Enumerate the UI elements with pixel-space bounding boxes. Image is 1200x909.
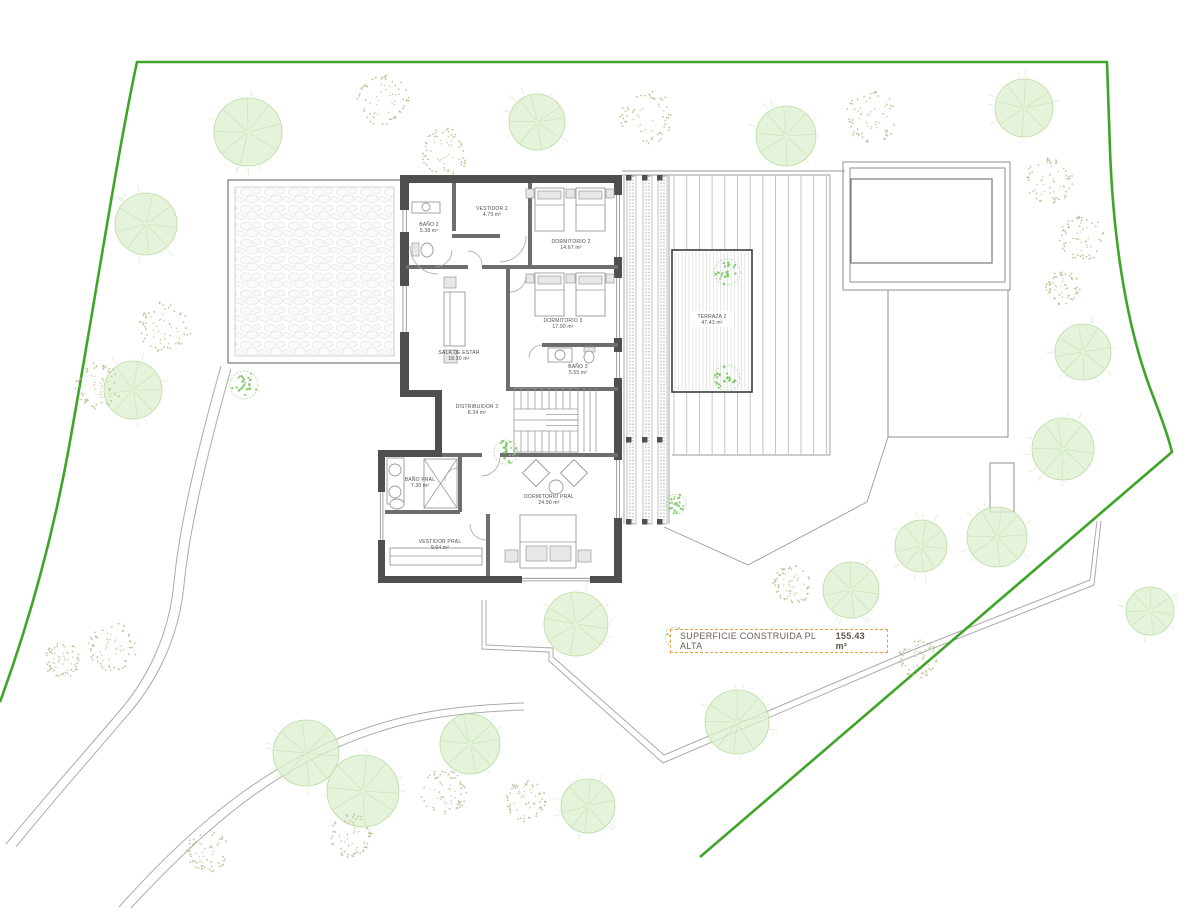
plant-symbol [230, 371, 258, 399]
tree-symbol [1046, 317, 1116, 383]
tree-symbol [1117, 587, 1179, 642]
room-label: TERRAZA 247.43 m² [697, 314, 726, 326]
tree-symbol [544, 585, 614, 656]
shrub-symbol [356, 74, 409, 125]
room-label: DISTRIBUIDOR 28.34 m² [456, 404, 499, 416]
shrub-symbol [139, 302, 191, 352]
tree-symbol [552, 774, 616, 840]
house [378, 175, 622, 583]
built-area-summary-box: SUPERFICIE CONSTRUIDA PL ALTA 155.43 m² [670, 629, 888, 653]
tree-symbol [440, 706, 502, 776]
built-area-value: 155.43 m² [836, 631, 878, 651]
floor-plan-drawing: BAÑO 25.38 m²VESTIDOR 24.79 m²DORMITORIO… [0, 0, 1200, 909]
shrub-symbol [186, 830, 227, 873]
shrub-symbol [506, 780, 547, 823]
tree-symbol [823, 559, 879, 624]
terrace-deck [622, 171, 888, 565]
room-label: BAÑO 25.38 m² [419, 221, 439, 234]
shrub-symbol [46, 643, 80, 677]
room-label: DORMITORIO PRAL24.90 m² [524, 494, 574, 506]
plant-symbol [714, 259, 740, 285]
site-plan-canvas: BAÑO 25.38 m²VESTIDOR 24.79 m²DORMITORIO… [0, 0, 1200, 909]
tree-symbol [503, 88, 568, 153]
tree-symbol [701, 684, 778, 760]
shrub-symbol [1059, 216, 1104, 260]
shrub-symbol [1045, 271, 1080, 305]
room-label: DORMITORIO 214.67 m² [552, 239, 591, 251]
tree-symbol [208, 91, 282, 176]
shrub-symbol [88, 623, 137, 671]
tree-symbol [1023, 411, 1094, 486]
shrub-symbol [772, 565, 810, 603]
built-area-label: SUPERFICIE CONSTRUIDA PL ALTA [680, 631, 836, 651]
plant-symbol [714, 365, 740, 391]
tree-symbol [962, 502, 1032, 567]
tree-symbol [988, 69, 1060, 137]
shrub-symbol [422, 128, 466, 175]
shrub-symbol [619, 91, 671, 145]
tree-symbol [894, 512, 947, 582]
room-label: DORMITORIO 317.90 m² [544, 318, 583, 330]
pool [843, 162, 1014, 512]
room-label: VESTIDOR 24.79 m² [476, 206, 508, 218]
tree-symbol [97, 353, 168, 426]
pergola [228, 180, 401, 363]
shrub-symbol [421, 771, 468, 815]
room-label: BAÑO 35.55 m² [568, 363, 588, 376]
shrub-symbol [847, 91, 896, 143]
tree-symbol [115, 184, 177, 264]
shrub-symbol [1026, 158, 1073, 204]
tree-symbol [749, 100, 818, 172]
